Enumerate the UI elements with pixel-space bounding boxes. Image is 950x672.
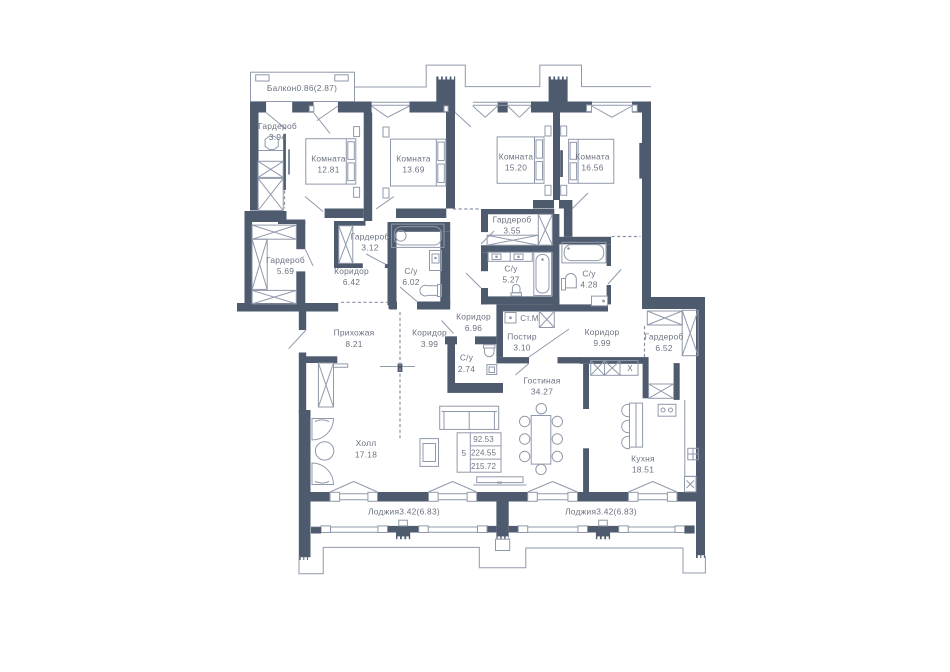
svg-text:Коридор: Коридор: [334, 266, 369, 276]
svg-text:Прихожая: Прихожая: [334, 328, 375, 338]
svg-text:12.81: 12.81: [317, 165, 339, 175]
svg-text:6.42: 6.42: [343, 277, 360, 287]
svg-text:215.72: 215.72: [471, 462, 497, 471]
svg-text:3.94: 3.94: [269, 132, 286, 142]
svg-text:2.74: 2.74: [458, 364, 475, 374]
svg-text:Коридор: Коридор: [412, 328, 447, 338]
svg-text:Гостиная: Гостиная: [523, 376, 560, 386]
svg-text:Холл: Холл: [356, 438, 377, 448]
svg-text:Лоджия3.42(6.83): Лоджия3.42(6.83): [565, 507, 637, 517]
svg-text:5.27: 5.27: [502, 275, 519, 285]
svg-text:Гардероб: Гардероб: [351, 232, 390, 242]
svg-text:Коридор: Коридор: [585, 327, 620, 337]
svg-text:6.52: 6.52: [655, 343, 672, 353]
svg-text:13.69: 13.69: [402, 165, 424, 175]
svg-text:5: 5: [462, 449, 467, 458]
svg-text:Гардероб: Гардероб: [266, 255, 305, 265]
svg-text:17.18: 17.18: [355, 450, 377, 460]
svg-text:Постир: Постир: [507, 332, 537, 342]
svg-text:Кухня: Кухня: [631, 454, 655, 464]
svg-text:6.02: 6.02: [402, 277, 419, 287]
svg-text:6.96: 6.96: [465, 323, 482, 333]
svg-text:3.55: 3.55: [503, 226, 520, 236]
svg-text:С/у: С/у: [460, 353, 474, 363]
svg-text:Гардероб: Гардероб: [645, 332, 684, 342]
svg-text:С/у: С/у: [504, 264, 518, 274]
svg-text:15.20: 15.20: [505, 163, 527, 173]
svg-text:34.27: 34.27: [531, 387, 553, 397]
svg-text:Комната: Комната: [575, 152, 610, 162]
svg-text:Гардероб: Гардероб: [258, 121, 297, 131]
svg-text:3.10: 3.10: [513, 343, 530, 353]
svg-text:С/у: С/у: [582, 269, 596, 279]
svg-text:3.99: 3.99: [421, 339, 438, 349]
svg-text:9.99: 9.99: [593, 338, 610, 348]
svg-text:Комната: Комната: [311, 154, 346, 164]
svg-text:224.55: 224.55: [471, 449, 497, 458]
svg-text:Ст.М: Ст.М: [520, 314, 539, 323]
svg-text:С/у: С/у: [404, 266, 418, 276]
svg-text:Лоджия3.42(6.83): Лоджия3.42(6.83): [368, 507, 440, 517]
svg-text:X: X: [627, 364, 633, 373]
svg-text:8.21: 8.21: [345, 339, 362, 349]
svg-text:Гардероб: Гардероб: [493, 215, 532, 225]
svg-text:92.53: 92.53: [473, 435, 494, 444]
svg-text:Комната: Комната: [499, 152, 534, 162]
svg-text:Комната: Комната: [396, 154, 431, 164]
svg-text:4.28: 4.28: [580, 280, 597, 290]
svg-text:18.51: 18.51: [632, 465, 654, 475]
svg-text:5.69: 5.69: [277, 266, 294, 276]
svg-text:3.12: 3.12: [361, 243, 378, 253]
svg-text:Коридор: Коридор: [456, 312, 491, 322]
svg-text:Балкон0.86(2.87): Балкон0.86(2.87): [267, 83, 337, 93]
svg-text:16.56: 16.56: [581, 163, 603, 173]
